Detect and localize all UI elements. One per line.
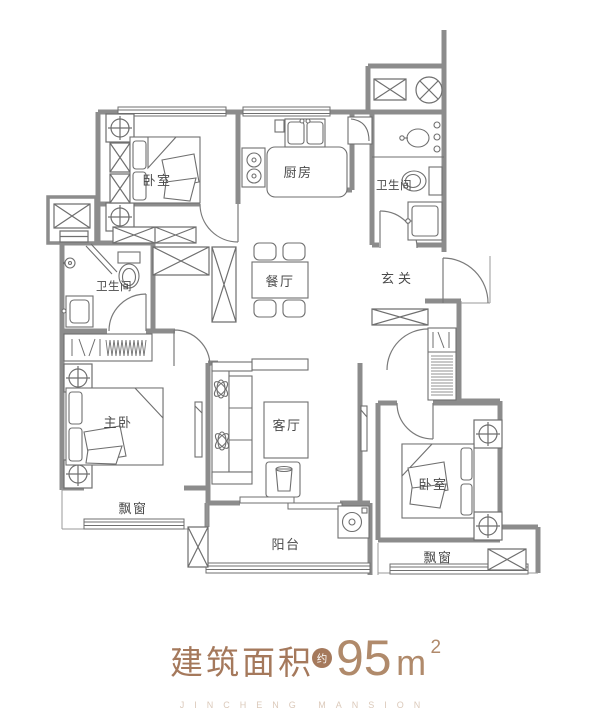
room-label: 客厅 xyxy=(272,418,301,433)
pillow xyxy=(461,448,472,480)
shaft-icon xyxy=(374,79,406,100)
sofa-arm xyxy=(212,362,252,371)
floor-plan-page: 卧室 厨房 xyxy=(0,0,605,720)
bedroom-right: 卧室 xyxy=(402,444,474,518)
room-label: 卫生间 xyxy=(376,178,412,192)
washing-machine-icon xyxy=(338,506,369,538)
master-door-swing-icon xyxy=(174,330,210,366)
sliding-door-balcony xyxy=(240,497,342,509)
bedroom-top: 卧室 xyxy=(130,137,200,203)
window-balcony xyxy=(206,563,370,573)
master-bedroom: 主卧 xyxy=(66,388,202,465)
sofa-seat xyxy=(229,376,252,472)
pillow xyxy=(69,392,82,424)
shower-head-icon xyxy=(63,258,75,268)
shower-screen xyxy=(86,244,117,274)
column-marker-icon xyxy=(474,420,502,448)
window-bay-left xyxy=(84,519,184,529)
watermark: JINCHENG MANSION xyxy=(180,700,431,710)
double-sink-icon xyxy=(285,119,325,147)
living-room: 客厅 xyxy=(212,359,367,497)
chair xyxy=(283,243,305,260)
approx-badge: 约 xyxy=(312,648,332,668)
approx-badge-text: 约 xyxy=(317,652,328,665)
room-label: 卧室 xyxy=(142,173,171,188)
chair xyxy=(254,300,276,317)
room-label: 阳台 xyxy=(271,537,300,552)
duct-x-icon xyxy=(212,247,236,322)
bedroom-right-door-swing-icon xyxy=(397,403,433,439)
window-kitchen xyxy=(243,107,330,116)
sink-icon xyxy=(400,122,440,152)
chair xyxy=(283,300,305,317)
shower-icon xyxy=(405,202,442,240)
bedroom-wardrobe-x-icon xyxy=(110,143,130,203)
chair xyxy=(254,243,276,260)
area-superscript: 2 xyxy=(431,637,442,658)
room-label: 卧室 xyxy=(418,477,447,492)
pillow xyxy=(133,141,146,169)
ac-platform-x-icon xyxy=(54,204,90,242)
pillow xyxy=(461,484,472,515)
pillow xyxy=(69,428,82,461)
stove-icon xyxy=(242,148,265,187)
room-label: 厨房 xyxy=(283,165,312,180)
balcony-column-x-icon xyxy=(188,527,208,567)
area-unit: m xyxy=(396,642,426,683)
bay-window-label: 飘窗 xyxy=(118,501,147,516)
bedroom-top-door-swing-icon xyxy=(200,204,238,242)
bay-right-x-icon xyxy=(488,549,526,570)
console-table xyxy=(252,359,308,370)
bay-window-label: 飘窗 xyxy=(423,550,452,565)
room-label: 餐厅 xyxy=(265,274,294,289)
laundry-closet xyxy=(64,334,152,361)
footer: 建筑面积 约 95 m 2 JINCHENG MANSION xyxy=(170,630,441,710)
corner-cabinet xyxy=(348,117,372,144)
bathroom-left: 卫生间 xyxy=(62,244,140,327)
sink-icon xyxy=(62,296,93,327)
entry-hall: 玄关 xyxy=(381,271,415,286)
area-value: 95 m 2 xyxy=(336,630,441,686)
closet-x-icon xyxy=(113,227,196,243)
entry-cabinet-x-icon xyxy=(372,309,428,325)
bathroom-top: 卫生间 xyxy=(372,122,444,240)
corridor-curve xyxy=(387,329,428,370)
column-marker-icon xyxy=(474,512,502,540)
room-label: 卫生间 xyxy=(96,279,132,293)
dining-room: 餐厅 xyxy=(252,243,308,317)
bath-left-door-swing-icon xyxy=(109,294,146,331)
room-label: 玄关 xyxy=(381,271,415,286)
entry-wardrobe xyxy=(428,328,456,400)
room-label: 主卧 xyxy=(103,415,132,430)
floor-plan-svg: 卧室 厨房 xyxy=(0,0,605,720)
exhaust-fan-icon xyxy=(416,77,442,103)
coffee-table xyxy=(266,462,300,497)
entry-door-swing-icon xyxy=(443,258,488,303)
sofa-arm xyxy=(212,472,252,484)
storage-x-icon xyxy=(153,247,209,275)
area-label: 建筑面积 xyxy=(170,644,314,681)
balcony: 阳台 xyxy=(271,506,369,552)
soap-dish xyxy=(275,120,284,132)
area-number: 95 xyxy=(336,630,392,686)
